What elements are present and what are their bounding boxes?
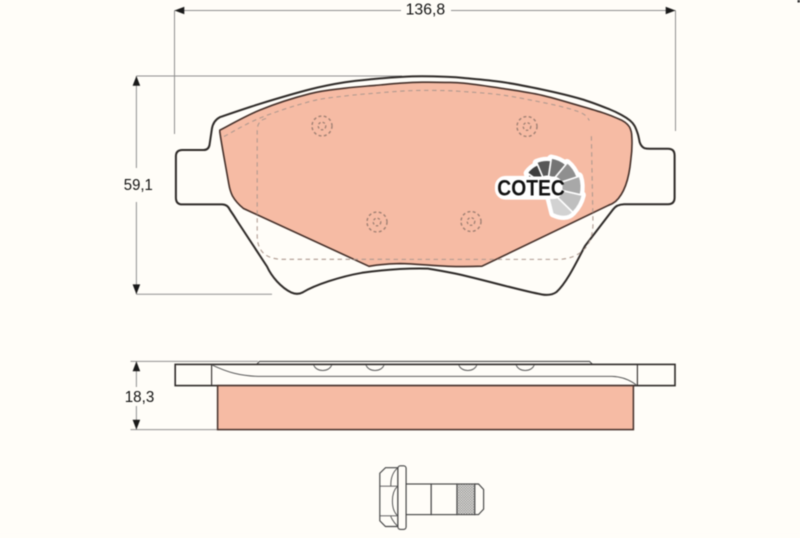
svg-text:18,3: 18,3 [125, 389, 155, 406]
svg-text:COTEC: COTEC [497, 175, 565, 200]
svg-text:136,8: 136,8 [406, 1, 446, 18]
svg-text:59,1: 59,1 [124, 177, 153, 194]
